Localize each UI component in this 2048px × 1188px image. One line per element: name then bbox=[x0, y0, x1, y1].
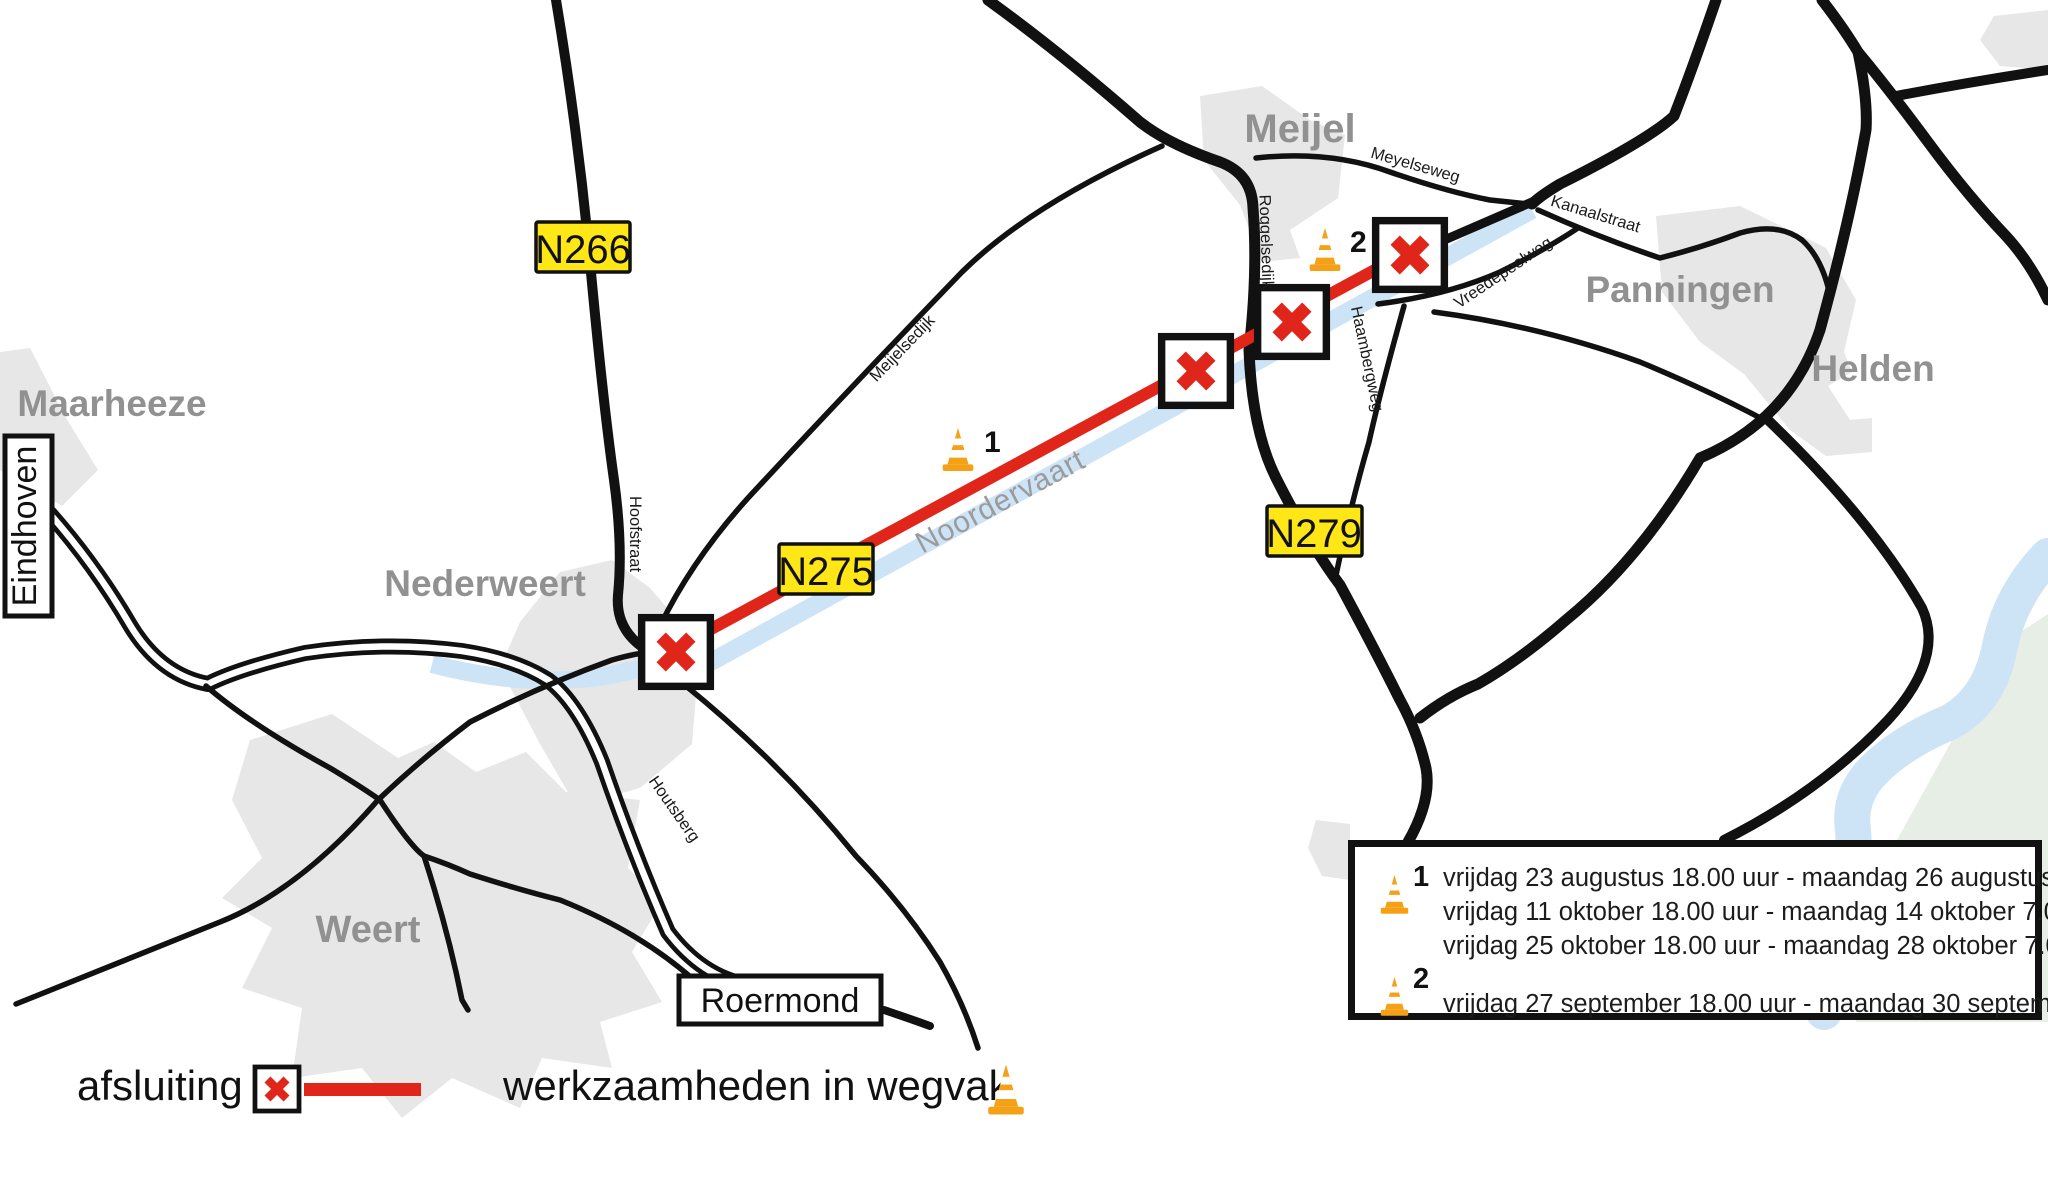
destination-eindhoven-label: Eindhoven bbox=[6, 446, 44, 607]
urban-topright bbox=[1980, 10, 2048, 70]
city-meijel: Meijel bbox=[1244, 107, 1355, 151]
shield-n279: N279 bbox=[1266, 506, 1362, 556]
closure-marker-east bbox=[1376, 221, 1445, 290]
work-zone-1-number: 1 bbox=[984, 426, 1001, 459]
city-maarheeze: Maarheeze bbox=[17, 383, 206, 424]
shield-n275: N275 bbox=[778, 544, 874, 594]
work-zone-1: 1 bbox=[943, 426, 1001, 471]
cone-icon bbox=[1310, 228, 1341, 271]
road-topright-east bbox=[1896, 70, 2048, 96]
destination-roermond: Roermond bbox=[679, 976, 881, 1024]
city-weert: Weert bbox=[316, 909, 421, 951]
road-helden bbox=[1724, 420, 1929, 840]
shield-n275-label: N275 bbox=[778, 550, 874, 594]
street-houtsberg: Houtsberg bbox=[645, 773, 703, 846]
closure-x-icon bbox=[252, 1064, 302, 1114]
closure-line-sample bbox=[304, 1083, 421, 1096]
street-hoofstraat: Hoofstraat bbox=[626, 496, 644, 573]
shield-n266-label: N266 bbox=[535, 228, 631, 272]
schedule-entry-2-dates: vrijdag 27 september 18.00 uur - maandag… bbox=[1443, 987, 2048, 1021]
road-northeast-diagonal bbox=[1532, 0, 1716, 204]
street-roggelsedijk: Roggelsedijk bbox=[1255, 194, 1276, 290]
street-haambergweg: Haambergweg bbox=[1347, 305, 1387, 414]
work-zone-2-number: 2 bbox=[1350, 226, 1367, 259]
cone-icon bbox=[1379, 871, 1410, 917]
road-roermond-stub bbox=[884, 1010, 930, 1026]
destination-eindhoven: Eindhoven bbox=[5, 436, 52, 616]
urban-legend-edge bbox=[1308, 820, 1350, 880]
city-helden: Helden bbox=[1811, 348, 1934, 389]
street-meijelsedijk: Meijelsedijk bbox=[866, 311, 939, 385]
legend-closure-label: afsluiting bbox=[77, 1062, 243, 1110]
shield-n266: N266 bbox=[535, 222, 631, 272]
closure-marker-middle bbox=[1258, 288, 1327, 357]
work-zone-2: 2 bbox=[1310, 226, 1367, 271]
schedule-entry-1-number: 1 bbox=[1413, 861, 1429, 894]
schedule-box: 1 vrijdag 23 augustus 18.00 uur - maanda… bbox=[1348, 840, 2042, 1020]
schedule-date-line: vrijdag 27 september 18.00 uur - maandag… bbox=[1443, 987, 2048, 1021]
cone-icon bbox=[943, 428, 974, 471]
closure-marker-nederweert bbox=[642, 618, 711, 687]
schedule-entry-2-number: 2 bbox=[1413, 963, 1429, 996]
shield-n279-label: N279 bbox=[1266, 512, 1362, 556]
street-kanaalstraat: Kanaalstraat bbox=[1549, 192, 1643, 236]
city-nederweert: Nederweert bbox=[384, 563, 586, 604]
schedule-date-line: vrijdag 25 oktober 18.00 uur - maandag 2… bbox=[1443, 929, 2048, 963]
schedule-date-line: vrijdag 23 augustus 18.00 uur - maandag … bbox=[1443, 861, 2048, 895]
closure-marker-west bbox=[1162, 337, 1231, 406]
cone-icon bbox=[986, 1062, 1026, 1116]
city-panningen: Panningen bbox=[1585, 269, 1774, 310]
cone-icon bbox=[1379, 973, 1410, 1019]
legend-works-label: werkzaamheden in wegvak bbox=[503, 1062, 1010, 1110]
roadworks-map: 1 2 N266 N275 N279 bbox=[0, 0, 2048, 1188]
schedule-entry-1-dates: vrijdag 23 augustus 18.00 uur - maandag … bbox=[1443, 861, 2048, 963]
street-labels: Hoofstraat Houtsberg Meijelsedijk Meyels… bbox=[626, 144, 1643, 846]
destination-roermond-label: Roermond bbox=[701, 982, 860, 1020]
schedule-date-line: vrijdag 11 oktober 18.00 uur - maandag 1… bbox=[1443, 895, 2048, 929]
